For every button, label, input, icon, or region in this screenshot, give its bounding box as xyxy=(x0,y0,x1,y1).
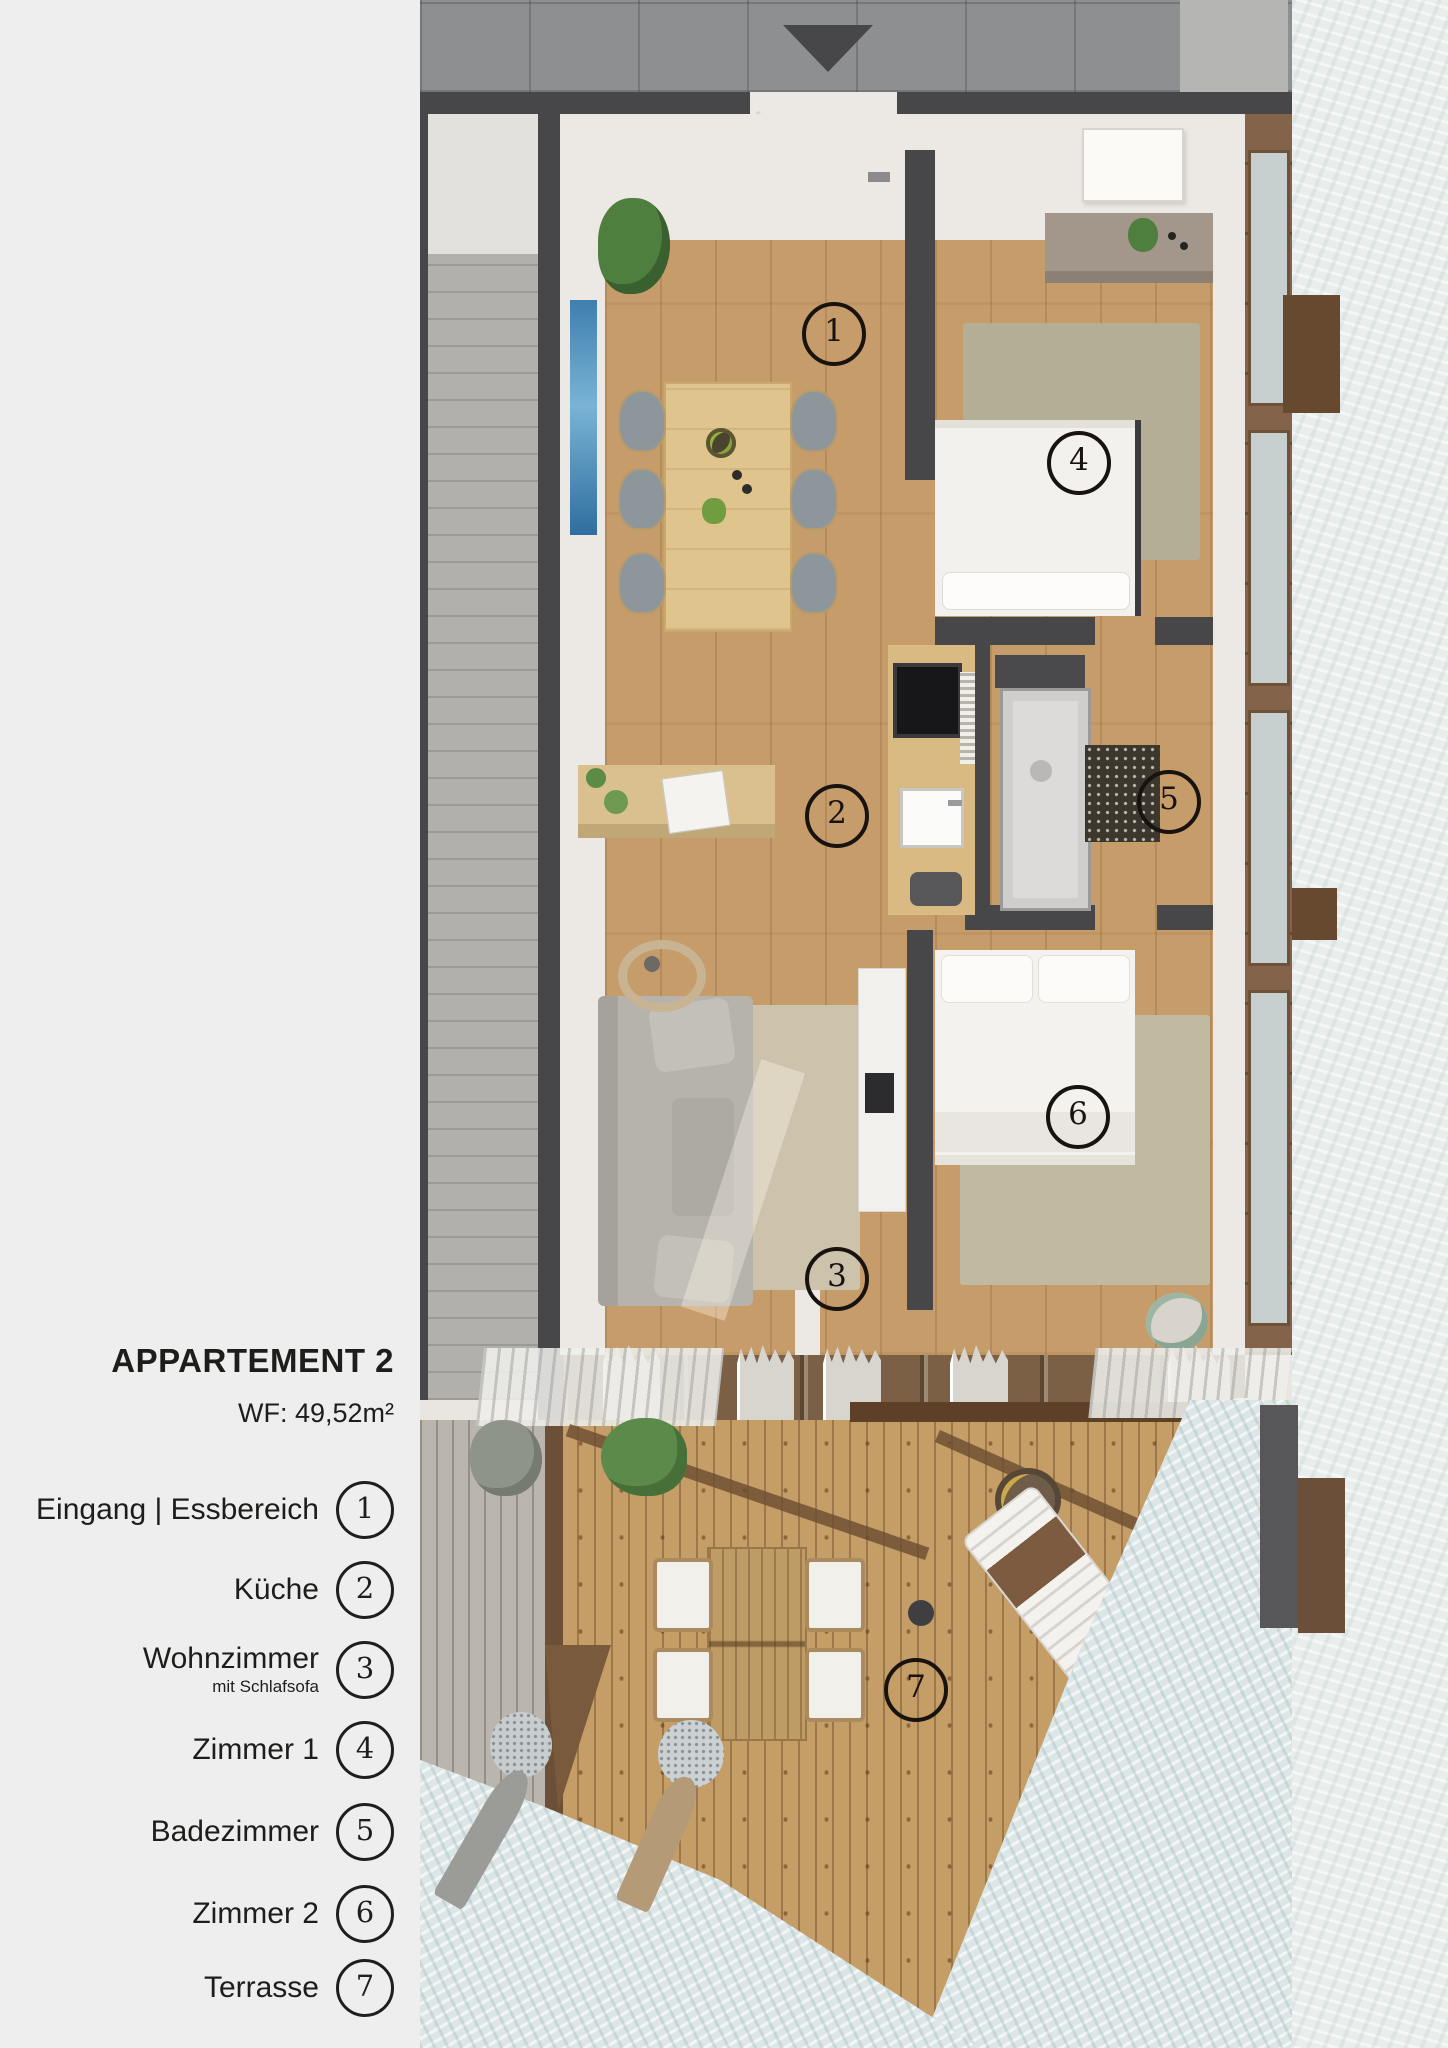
legend-label: Wohnzimmer xyxy=(143,1643,319,1675)
neighbor-room xyxy=(420,114,538,254)
legend-item-badezimmer: Badezimmer 5 xyxy=(0,1803,394,1861)
legend-item-eingang: Eingang | Essbereich 1 xyxy=(0,1481,394,1539)
candle xyxy=(742,484,752,494)
legend-sublabel: mit Schlafsofa xyxy=(212,1677,319,1697)
bush-gray xyxy=(470,1420,542,1496)
legend-number-circle: 5 xyxy=(336,1803,394,1861)
table-plant xyxy=(702,498,726,524)
marker-badezimmer: 5 xyxy=(1137,770,1201,834)
living-area-label: WF: 49,52m² xyxy=(0,1398,394,1429)
outdoor-chair xyxy=(653,1648,713,1722)
outdoor-chair xyxy=(805,1558,865,1632)
shower-wall xyxy=(995,655,1085,688)
candle xyxy=(1168,232,1176,240)
wall-dining-zimmer1 xyxy=(905,150,935,480)
shower xyxy=(1000,688,1091,911)
legend-label: Badezimmer xyxy=(151,1816,319,1848)
exterior-wood-fin xyxy=(1298,1478,1345,1633)
legend-label: Zimmer 2 xyxy=(192,1898,319,1930)
marker-wohnzimmer: 3 xyxy=(805,1247,869,1311)
pergola-panel xyxy=(476,1348,724,1426)
side-table xyxy=(618,940,706,1012)
outdoor-chair xyxy=(805,1648,865,1722)
wall-art xyxy=(570,300,597,535)
legend-item-terrasse: Terrasse 7 xyxy=(0,1959,394,2017)
corridor-mat xyxy=(1180,0,1288,92)
floor-plan: 1 2 3 4 5 6 7 xyxy=(420,0,1448,2048)
balcony-box xyxy=(1283,295,1340,413)
dish-rack xyxy=(960,672,975,764)
wall-living-zimmer2 xyxy=(907,930,933,1310)
legend-label: Eingang | Essbereich xyxy=(36,1494,319,1526)
door-handle xyxy=(868,172,890,182)
tv xyxy=(865,1073,894,1113)
stool xyxy=(910,872,962,906)
dining-chair xyxy=(618,552,666,614)
dining-table xyxy=(664,382,792,632)
legend-item-zimmer1: Zimmer 1 4 xyxy=(0,1721,394,1779)
legend-item-zimmer2: Zimmer 2 6 xyxy=(0,1885,394,1943)
bed-fold xyxy=(942,572,1130,610)
pillow xyxy=(941,955,1033,1003)
entrance-arrow-icon xyxy=(783,25,873,72)
dining-chair xyxy=(790,468,838,530)
legend-number-circle: 1 xyxy=(336,1481,394,1539)
exterior-pillar xyxy=(1260,1405,1298,1628)
dining-chair xyxy=(790,552,838,614)
legend-number-circle: 7 xyxy=(336,1959,394,2017)
bush-green xyxy=(601,1418,687,1496)
faucet xyxy=(948,800,962,806)
sideboard-zimmer1 xyxy=(1045,213,1213,283)
dining-chair xyxy=(790,390,838,452)
wall-divider-left xyxy=(538,114,560,1420)
umbrella-base xyxy=(490,1712,552,1778)
table-lamp xyxy=(644,956,660,972)
dining-chair xyxy=(618,468,666,530)
shower-drain xyxy=(1030,760,1052,782)
moss-decor xyxy=(604,790,628,814)
umbrella-base xyxy=(658,1720,724,1788)
legend-item-wohnzimmer: Wohnzimmer mit Schlafsofa 3 xyxy=(0,1641,394,1699)
marker-zimmer1: 4 xyxy=(1047,431,1111,495)
fruit-bowl xyxy=(706,428,736,458)
legend-number-circle: 2 xyxy=(336,1561,394,1619)
pergola-post xyxy=(908,1600,934,1626)
marker-eingang: 1 xyxy=(802,302,866,366)
pillow xyxy=(1038,955,1130,1003)
legend-number-circle: 4 xyxy=(336,1721,394,1779)
plant-tray xyxy=(1146,1293,1208,1351)
sideboard-plant xyxy=(1128,218,1158,252)
apartment-title: APPARTEMENT 2 xyxy=(0,1342,394,1380)
outdoor-chair xyxy=(653,1558,713,1632)
outdoor-table xyxy=(707,1547,807,1741)
legend-label: Terrasse xyxy=(204,1972,319,2004)
wall-bath-zimmer2 xyxy=(1157,905,1213,930)
cooktop xyxy=(893,663,962,738)
books xyxy=(661,770,730,834)
neighbor-floor xyxy=(420,254,538,1400)
legend-label-group: Wohnzimmer mit Schlafsofa xyxy=(143,1643,319,1697)
legend-label: Zimmer 1 xyxy=(192,1734,319,1766)
window-glass xyxy=(1248,710,1290,966)
picture-frame xyxy=(1082,128,1184,202)
legend-number-circle: 3 xyxy=(336,1641,394,1699)
wall-zimmer1-bath xyxy=(935,617,1095,645)
wall-left-edge xyxy=(420,92,428,1400)
candle xyxy=(732,470,742,480)
balcony-box xyxy=(1292,888,1337,940)
marker-zimmer2: 6 xyxy=(1046,1085,1110,1149)
window-glass xyxy=(1248,430,1290,686)
wall-zimmer1-bath xyxy=(1155,617,1213,645)
candle xyxy=(1180,242,1188,250)
dining-chair xyxy=(618,390,666,452)
legend-label: Küche xyxy=(234,1574,319,1606)
legend-sidebar: APPARTEMENT 2 WF: 49,52m² Eingang | Essb… xyxy=(0,0,420,2048)
legend-item-kueche: Küche 2 xyxy=(0,1561,394,1619)
marker-kueche: 2 xyxy=(805,784,869,848)
moss-decor xyxy=(586,768,606,788)
window-glass xyxy=(1248,990,1290,1326)
marker-terrasse: 7 xyxy=(884,1658,948,1722)
kitchen-sink xyxy=(900,788,964,848)
legend-number-circle: 6 xyxy=(336,1885,394,1943)
